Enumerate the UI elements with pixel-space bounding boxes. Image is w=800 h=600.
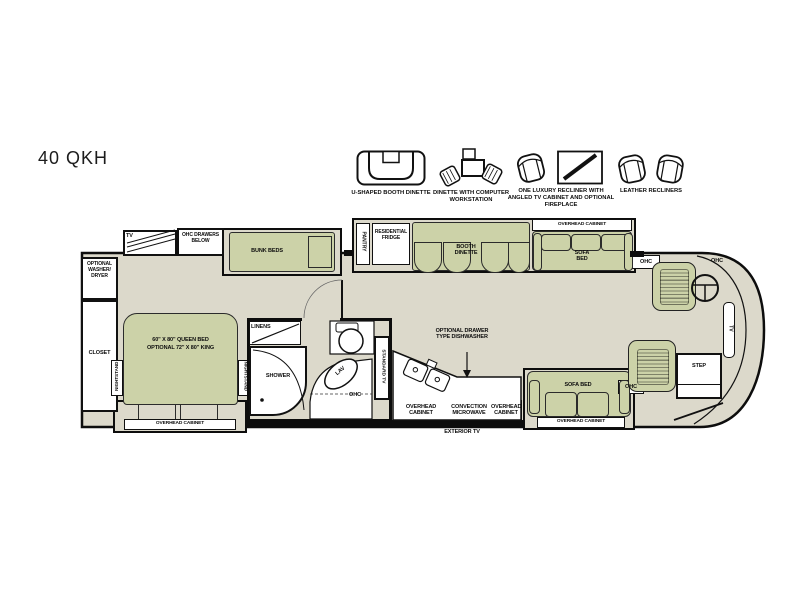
label-convection-microwave: CONVECTION MICROWAVE: [449, 404, 489, 417]
label-standard-tv: STANDARD TV: [380, 339, 385, 393]
wall-segment: [344, 250, 352, 256]
bottom-wall: [245, 420, 523, 427]
driver-seat: [652, 262, 696, 311]
legend-label-recliner-fireplace: ONE LUXURY RECLINER WITH ANGLED TV CABIN…: [506, 188, 616, 210]
sofa-armrest: [529, 380, 540, 414]
label-dash-tv: TV: [728, 315, 733, 343]
label-ohc-bath: OHC: [344, 392, 366, 398]
step-divider: [678, 384, 720, 385]
sofa-cushion: [545, 392, 577, 417]
label-nightstand-left: NIGHTSTAND: [115, 356, 120, 396]
label-residential-fridge: RESIDENTIAL FRIDGE: [373, 230, 409, 242]
label-bunk-beds: BUNK BEDS: [236, 248, 298, 254]
entry-step: [676, 353, 722, 399]
computer-workstation-dinette-icon: [438, 148, 504, 188]
queen-bed: [123, 313, 238, 405]
label-overhead-cabinet-sofa-bottom: OVERHEAD CABINET: [539, 419, 623, 425]
dishwasher-line: [477, 380, 478, 400]
label-optional-dishwasher: OPTIONAL DRAWER TYPE DISHWASHER: [432, 328, 492, 341]
label-nightstand-right: NIGHTSTAND: [243, 356, 248, 396]
label-bed-option: OPTIONAL 72" X 80" KING: [128, 345, 233, 351]
booth-bench: [481, 242, 509, 273]
u-shaped-booth-dinette-icon: [356, 150, 426, 186]
legend-label-computer-dinette: DINETTE WITH COMPUTER WORKSTATION: [430, 190, 512, 204]
label-ohc-drawers: OHC DRAWERS BELOW: [179, 233, 222, 245]
recliner-fireplace-icon: [514, 150, 606, 186]
label-ohc-door-side: OHC: [618, 384, 644, 390]
label-washer-dryer: OPTIONAL WASHER/ DRYER: [83, 262, 116, 279]
label-overhead-cabinet-kitchen-left: OVERHEAD CABINET: [396, 404, 446, 417]
label-overhead-cabinet-sofa-top: OVERHEAD CABINET: [534, 222, 630, 228]
label-rear-tv: TV: [126, 233, 140, 239]
label-sofa-bed-top: SOFA BED: [570, 250, 594, 263]
label-exterior-tv: EXTERIOR TV: [430, 429, 494, 435]
label-step: STEP: [678, 363, 720, 369]
label-ohc-front-right: OHC: [704, 258, 730, 264]
bathroom-door-opening: [302, 315, 340, 324]
sofa-cushion: [577, 392, 609, 417]
label-overhead-cabinet-bed: OVERHEAD CABINET: [126, 421, 234, 427]
bed-drawer: [180, 404, 218, 420]
dishwasher-line: [465, 380, 466, 400]
label-shower: SHOWER: [252, 373, 304, 379]
label-overhead-cabinet-kitchen-right: OVERHEAD CABINET: [491, 404, 521, 417]
label-bed-size: 60" X 80" QUEEN BED: [128, 337, 233, 343]
bunk-pillow: [308, 236, 332, 268]
sofa-cushion: [571, 234, 601, 251]
booth-bench: [414, 242, 442, 273]
floorplan-page: 40 QKH U-SHAPED BOOTH DINETTE DINETTE WI…: [0, 0, 800, 600]
legend-label-u-dinette: U-SHAPED BOOTH DINETTE: [346, 190, 436, 197]
leather-recliners-icon: [616, 152, 688, 186]
dishwasher: [455, 377, 489, 403]
wall-segment-front: [630, 251, 644, 257]
booth-bench: [508, 242, 530, 273]
legend-label-leather-recliners: LEATHER RECLINERS: [618, 188, 684, 195]
passenger-seat-back: [637, 349, 669, 385]
label-linens: LINENS: [251, 324, 283, 330]
label-pantry: PANTRY: [361, 221, 366, 263]
label-closet: CLOSET: [83, 350, 116, 356]
label-ohc-front-left: OHC: [632, 259, 660, 265]
label-booth-dinette: BOOTH DINETTE: [449, 244, 483, 257]
sofa-armrest: [533, 233, 542, 271]
driver-seat-back: [660, 269, 689, 305]
dishwasher-line: [458, 389, 486, 390]
label-sofa-bed-bottom: SOFA BED: [550, 382, 606, 388]
sofa-cushion: [541, 234, 571, 251]
bed-drawer: [138, 404, 176, 420]
